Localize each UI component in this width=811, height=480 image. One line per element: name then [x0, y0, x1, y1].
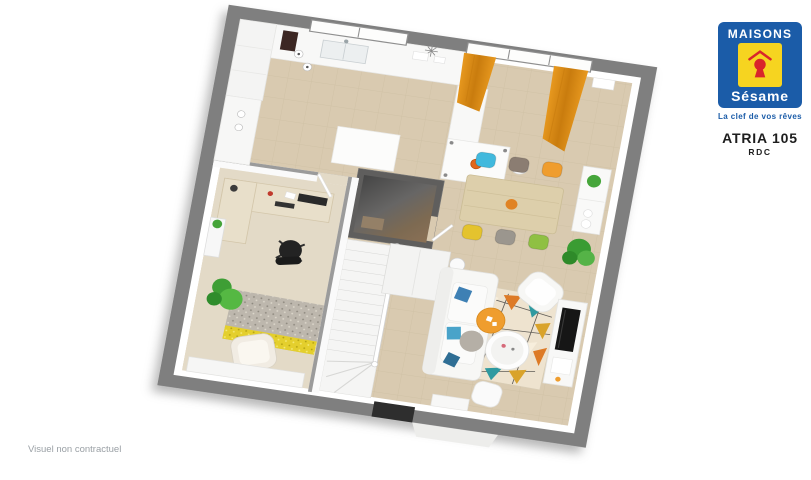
wall-shelf	[434, 56, 446, 63]
keyhole-icon	[738, 42, 782, 88]
floor-level: RDC	[704, 147, 811, 157]
logo-yellow-square	[738, 43, 782, 87]
brand-name-top: MAISONS	[728, 27, 792, 41]
dining-chair	[461, 224, 483, 241]
dining-chair	[528, 233, 550, 250]
model-name: ATRIA 105	[704, 130, 811, 146]
plan-title: ATRIA 105 RDC	[704, 130, 811, 157]
pillow	[447, 327, 461, 340]
logo-card: MAISONS Sésame	[718, 22, 802, 108]
disclaimer-text: Visuel non contractuel	[28, 444, 121, 455]
dining-chair	[541, 161, 563, 178]
dining-chair	[508, 156, 530, 173]
brand-logo: MAISONS Sésame La clef de vos rêves	[704, 22, 811, 121]
floorplan-render	[0, 0, 811, 480]
dining-chair	[475, 151, 497, 168]
brand-name-script: Sésame	[731, 88, 789, 104]
brand-tagline: La clef de vos rêves	[704, 112, 811, 121]
wc-floor	[353, 175, 437, 243]
dining-chair	[494, 229, 516, 246]
page: MAISONS Sésame La clef de vos rêves ATRI…	[0, 0, 811, 480]
